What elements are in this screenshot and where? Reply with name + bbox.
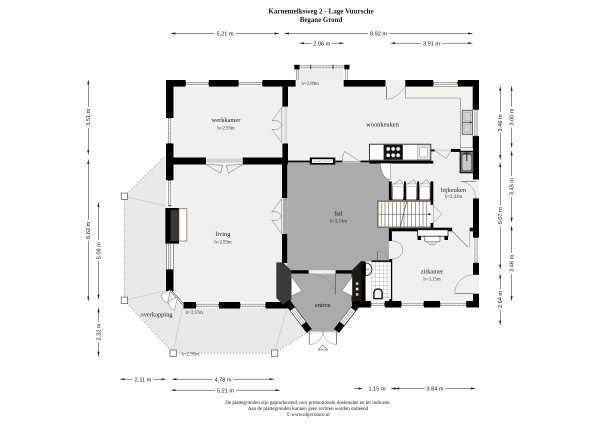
svg-text:5.06 m: 5.06 m xyxy=(96,242,102,259)
svg-text:2.64 m: 2.64 m xyxy=(498,291,504,308)
svg-text:zitkamer: zitkamer xyxy=(421,269,444,276)
svg-text:De plattegronden zijn geproduc: De plattegronden zijn geproduceerd voor … xyxy=(225,401,391,406)
svg-text:© www.objectance.nl: © www.objectance.nl xyxy=(286,412,330,418)
svg-text:5.21 m: 5.21 m xyxy=(216,32,233,38)
svg-text:h=2.93m: h=2.93m xyxy=(214,241,231,246)
svg-text:Aan de plattegronden kunnen ge: Aan de plattegronden kunnen geen rechten… xyxy=(248,407,369,412)
svg-text:h=2.93m: h=2.93m xyxy=(217,127,234,132)
svg-text:bijkeuken: bijkeuken xyxy=(441,187,467,194)
svg-text:living: living xyxy=(216,231,232,238)
svg-text:2.06 m: 2.06 m xyxy=(313,41,330,47)
svg-text:3.84 m: 3.84 m xyxy=(426,387,443,393)
svg-text:hal: hal xyxy=(335,211,343,218)
svg-text:h=3.15m: h=3.15m xyxy=(423,278,440,283)
svg-text:3.91 m: 3.91 m xyxy=(423,41,440,47)
svg-text:h=2.95m: h=2.95m xyxy=(182,353,199,358)
svg-text:3.46 m: 3.46 m xyxy=(510,254,516,271)
svg-text:werkkamer: werkkamer xyxy=(212,117,242,124)
svg-text:entree: entree xyxy=(315,302,331,309)
svg-text:Begane Grond: Begane Grond xyxy=(300,17,343,24)
svg-text:h=2.89m: h=2.89m xyxy=(302,82,319,87)
svg-text:3.51 m: 3.51 m xyxy=(86,108,92,125)
svg-text:h=3.14m: h=3.14m xyxy=(330,220,347,225)
svg-text:h=3.37m: h=3.37m xyxy=(186,311,203,316)
svg-text:Karnemelksweg 2 - Lage Vuursch: Karnemelksweg 2 - Lage Vuursche xyxy=(268,8,373,16)
svg-text:6.62 m: 6.62 m xyxy=(86,221,92,238)
svg-text:2.11 m: 2.11 m xyxy=(135,377,152,383)
svg-text:5.07 m: 5.07 m xyxy=(498,207,504,224)
svg-text:3.45 m: 3.45 m xyxy=(510,178,516,195)
svg-text:h=2.41m: h=2.41m xyxy=(445,195,462,200)
svg-text:overkapping: overkapping xyxy=(141,312,174,319)
svg-text:5.21 m: 5.21 m xyxy=(217,388,234,394)
svg-text:4.78 m: 4.78 m xyxy=(214,377,231,383)
svg-text:8.92 m: 8.92 m xyxy=(370,32,387,38)
svg-text:1.15 m: 1.15 m xyxy=(368,387,385,393)
svg-text:3.46 m: 3.46 m xyxy=(498,114,504,131)
svg-text:3.00 m: 3.00 m xyxy=(510,108,516,125)
svg-text:woonkeuken: woonkeuken xyxy=(366,122,399,129)
svg-text:2.32 m: 2.32 m xyxy=(96,323,102,340)
